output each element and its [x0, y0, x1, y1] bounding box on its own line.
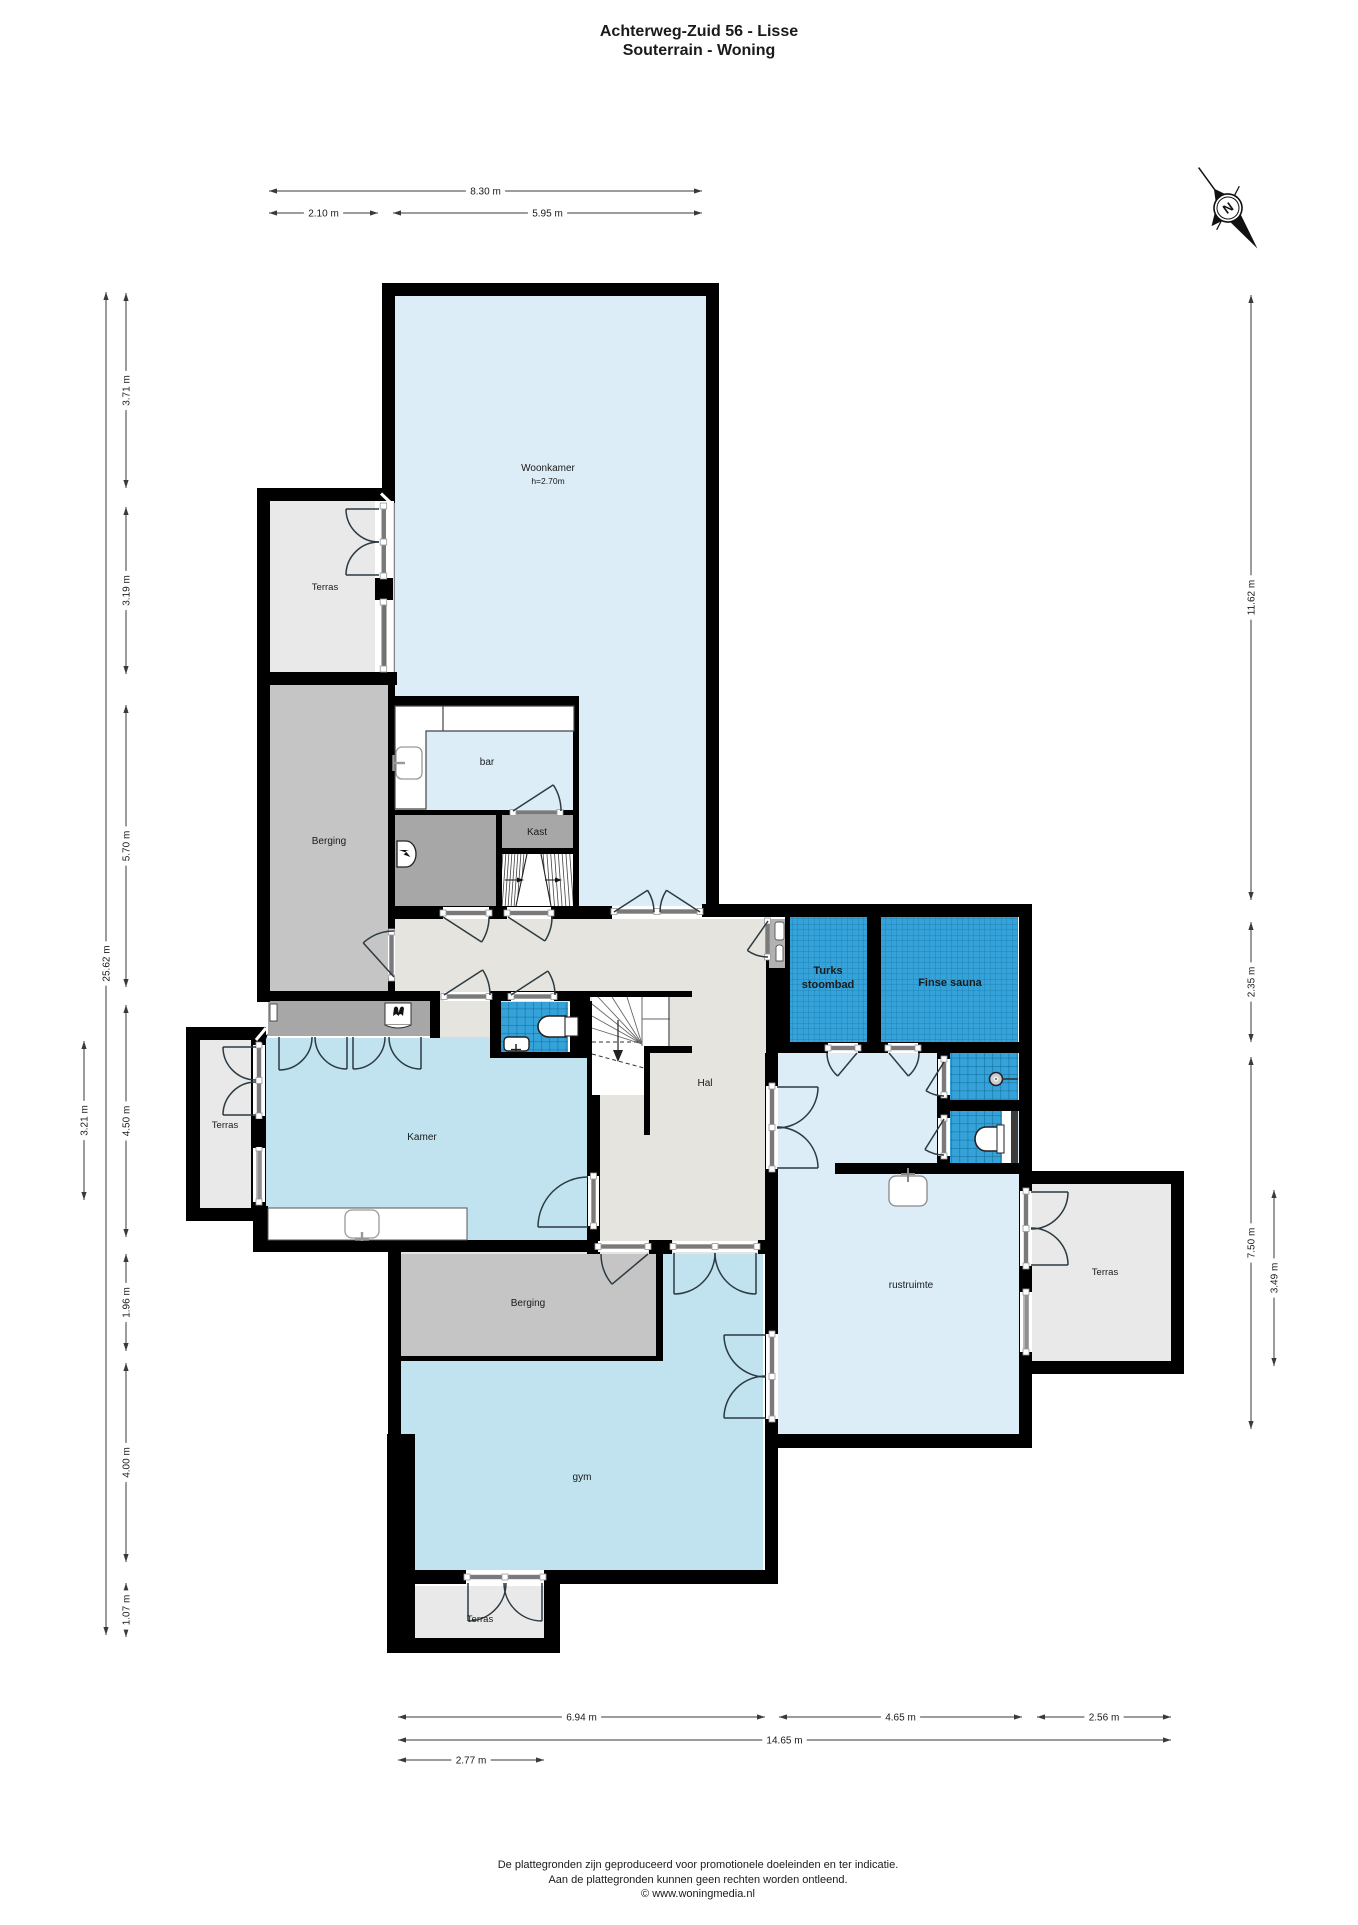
- svg-text:6.94 m: 6.94 m: [566, 1713, 597, 1724]
- svg-text:Terras: Terras: [467, 1614, 494, 1625]
- svg-text:5.70 m: 5.70 m: [122, 831, 133, 862]
- svg-text:Kast: Kast: [527, 827, 547, 838]
- svg-text:rustruimte: rustruimte: [889, 1280, 934, 1291]
- svg-text:Woonkamer: Woonkamer: [521, 463, 575, 474]
- svg-text:1.07 m: 1.07 m: [122, 1595, 133, 1626]
- svg-text:bar: bar: [480, 757, 495, 768]
- svg-text:2.77 m: 2.77 m: [456, 1756, 487, 1767]
- svg-text:De plattegronden zijn geproduc: De plattegronden zijn geproduceerd voor …: [498, 1859, 899, 1871]
- svg-text:3.19 m: 3.19 m: [122, 575, 133, 606]
- svg-text:Souterrain - Woning: Souterrain - Woning: [623, 42, 776, 59]
- svg-text:4.50 m: 4.50 m: [122, 1106, 133, 1137]
- svg-text:14.65 m: 14.65 m: [766, 1736, 802, 1747]
- svg-text:Terras: Terras: [1092, 1267, 1119, 1278]
- svg-text:Turks: Turks: [813, 965, 842, 977]
- svg-text:2.35 m: 2.35 m: [1247, 967, 1258, 998]
- svg-text:3.21 m: 3.21 m: [80, 1105, 91, 1136]
- svg-text:8.30 m: 8.30 m: [470, 187, 501, 198]
- svg-text:Achterweg-Zuid 56 - Lisse: Achterweg-Zuid 56 - Lisse: [600, 23, 798, 40]
- svg-text:gym: gym: [573, 1472, 592, 1483]
- svg-text:1.96 m: 1.96 m: [122, 1287, 133, 1318]
- svg-text:7.50 m: 7.50 m: [1247, 1228, 1258, 1259]
- svg-text:Terras: Terras: [312, 582, 339, 593]
- svg-text:Hal: Hal: [697, 1078, 712, 1089]
- svg-text:5.95 m: 5.95 m: [532, 209, 563, 220]
- svg-text:Kamer: Kamer: [407, 1132, 437, 1143]
- svg-text:3.49 m: 3.49 m: [1270, 1263, 1281, 1294]
- svg-text:Terras: Terras: [212, 1120, 239, 1131]
- svg-text:© www.woningmedia.nl: © www.woningmedia.nl: [641, 1888, 755, 1900]
- svg-text:4.00 m: 4.00 m: [122, 1447, 133, 1478]
- svg-text:2.10 m: 2.10 m: [308, 209, 339, 220]
- svg-text:4.65 m: 4.65 m: [885, 1713, 916, 1724]
- svg-text:stoombad: stoombad: [802, 979, 855, 991]
- svg-text:25.62 m: 25.62 m: [102, 945, 113, 981]
- svg-text:2.56 m: 2.56 m: [1089, 1713, 1120, 1724]
- svg-text:h=2.70m: h=2.70m: [531, 476, 564, 486]
- svg-text:Berging: Berging: [312, 836, 346, 847]
- svg-text:3.71 m: 3.71 m: [122, 375, 133, 406]
- svg-text:Berging: Berging: [511, 1298, 545, 1309]
- svg-text:11.62 m: 11.62 m: [1247, 580, 1258, 615]
- svg-text:Aan de plattegronden kunnen ge: Aan de plattegronden kunnen geen rechten…: [548, 1874, 847, 1886]
- svg-text:Finse sauna: Finse sauna: [918, 977, 982, 989]
